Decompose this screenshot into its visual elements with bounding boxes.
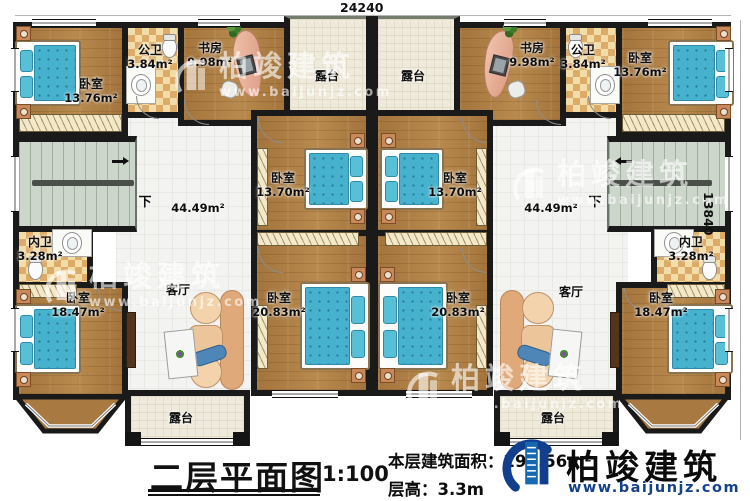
label-living-left: 客厅 — [166, 284, 190, 298]
label-bedroom-top-right: 卧室13.76m² — [613, 52, 666, 79]
bay-window-right — [616, 395, 731, 437]
window — [11, 48, 19, 92]
nightstand-icon — [16, 372, 31, 387]
nightstand-icon — [381, 133, 396, 148]
window — [725, 308, 733, 352]
nightstand-icon — [16, 289, 31, 304]
label-bedroom-bottom-right: 卧室18.47m² — [634, 292, 687, 319]
label-bedroom-bottom-center-right: 卧室20.83m² — [431, 292, 484, 319]
nightstand-icon — [350, 133, 365, 148]
label-terrace-top-right: 露台 — [401, 70, 425, 84]
terrace-rail-left — [141, 438, 233, 446]
label-terrace-bottom-left: 露台 — [169, 412, 193, 426]
floor-plan-page: 24240 13840 — [0, 0, 750, 501]
terrace-pillar — [233, 432, 249, 446]
bed-icon — [300, 282, 370, 370]
brand-website: www.baijunjz.com — [568, 480, 740, 496]
sink-icon — [62, 232, 82, 254]
dimension-line-right — [740, 20, 741, 440]
bay-window-left — [13, 395, 128, 437]
label-hall-left-area: 44.49m² — [171, 202, 224, 215]
window — [725, 48, 733, 92]
stairs-arrow-icon — [620, 160, 632, 163]
label-hall-right-area: 44.49m² — [524, 202, 577, 215]
dimension-right: 13840 — [714, 178, 728, 224]
bed-icon — [304, 148, 368, 210]
nightstand-icon — [350, 209, 365, 224]
nightstand-icon — [715, 372, 730, 387]
label-down-left: 下 — [138, 196, 151, 211]
stair-rail — [610, 180, 712, 186]
label-living-right: 客厅 — [559, 286, 583, 300]
coffee-table-icon — [548, 329, 583, 380]
label-terrace-top-left: 露台 — [315, 70, 339, 84]
nightstand-icon — [380, 368, 395, 383]
stairs-arrow-icon — [112, 160, 124, 163]
terrace-pillar — [125, 432, 141, 446]
window — [406, 390, 472, 398]
nightstand-icon — [16, 104, 31, 119]
label-bedroom-top-left: 卧室13.76m² — [64, 78, 117, 105]
stair-rail — [32, 180, 134, 186]
wardrobe-mid-left — [257, 232, 359, 246]
label-bedroom-mid-left: 卧室13.70m² — [256, 172, 309, 199]
label-bedroom-bottom-left: 卧室18.47m² — [51, 292, 104, 319]
title-underline — [148, 494, 320, 496]
nightstand-icon — [716, 26, 731, 41]
wardrobe-top-right — [622, 114, 725, 132]
wardrobe-top-left — [19, 114, 122, 132]
label-study-right: 书房9.98m² — [509, 42, 554, 69]
title-underline — [148, 489, 320, 492]
window — [32, 19, 96, 27]
nightstand-icon — [16, 26, 31, 41]
nightstand-icon — [381, 209, 396, 224]
sink-icon — [131, 74, 151, 96]
nightstand-icon — [715, 289, 730, 304]
window — [11, 156, 19, 212]
label-public-bath-right: 公卫3.84m² — [560, 44, 605, 71]
label-inner-bath-left: 内卫3.28m² — [17, 236, 62, 263]
window — [11, 308, 19, 352]
sink-icon — [595, 74, 615, 96]
tv-cabinet — [126, 312, 136, 368]
floor-height-text: 层高：3.3m — [388, 476, 484, 500]
window — [648, 19, 712, 27]
nightstand-icon — [351, 267, 366, 282]
floor-area-text: 本层建筑面积：297.56m² — [388, 448, 592, 472]
dimension-top: 24240 — [340, 0, 384, 15]
coffee-table-icon — [164, 329, 199, 380]
nightstand-icon — [716, 104, 731, 119]
window — [504, 19, 546, 27]
label-inner-bath-right: 内卫3.28m² — [668, 236, 713, 263]
label-down-right: 下 — [588, 196, 601, 211]
tv-cabinet — [610, 312, 620, 368]
room-terrace-top-left — [284, 16, 372, 120]
label-public-bath-left: 公卫3.84m² — [127, 44, 172, 71]
brand-logo-icon — [502, 436, 560, 496]
label-study-left: 书房9.98m² — [187, 42, 232, 69]
nightstand-icon — [380, 267, 395, 282]
label-bedroom-bottom-center-left: 卧室20.83m² — [252, 292, 305, 319]
scale-label: 1:100 — [322, 462, 389, 486]
window — [198, 19, 240, 27]
nightstand-icon — [351, 368, 366, 383]
label-bedroom-mid-right: 卧室13.70m² — [428, 172, 481, 199]
room-terrace-top-right — [372, 16, 460, 120]
wardrobe-mid-right — [385, 232, 487, 246]
label-terrace-bottom-right: 露台 — [541, 412, 565, 426]
window — [272, 390, 338, 398]
